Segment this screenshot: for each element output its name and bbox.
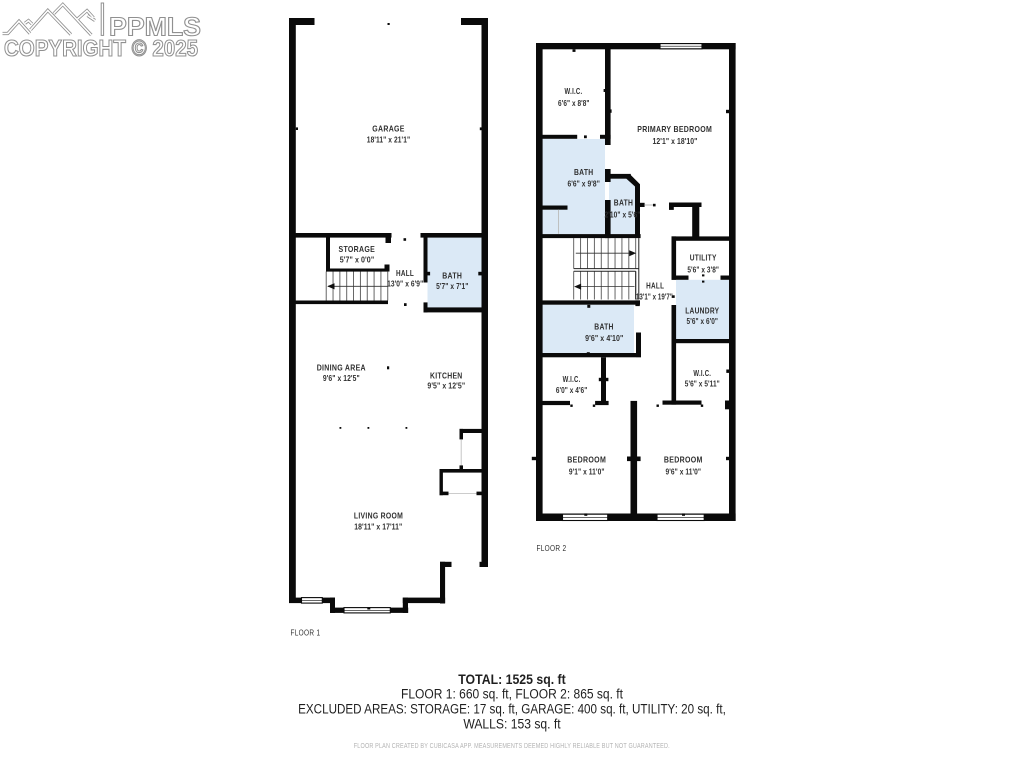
- svg-text:18'11" x 21'1": 18'11" x 21'1": [367, 134, 410, 144]
- svg-text:5'7" x 7'1": 5'7" x 7'1": [436, 281, 468, 291]
- svg-text:COPYRIGHT © 2025: COPYRIGHT © 2025: [4, 35, 198, 61]
- svg-text:TOTAL: 1525 sq. ft: TOTAL: 1525 sq. ft: [458, 672, 566, 687]
- svg-text:BEDROOM: BEDROOM: [664, 456, 703, 465]
- svg-text:W.I.C.: W.I.C.: [563, 375, 581, 384]
- svg-text:DINING AREA: DINING AREA: [317, 364, 366, 373]
- svg-text:5'6" x 3'8": 5'6" x 3'8": [687, 264, 719, 274]
- svg-text:GARAGE: GARAGE: [372, 125, 405, 134]
- svg-text:5'7" x 0'0": 5'7" x 0'0": [340, 254, 375, 264]
- svg-text:BATH: BATH: [594, 323, 614, 332]
- svg-text:13'1" x 19'7": 13'1" x 19'7": [636, 291, 673, 301]
- svg-text:BATH: BATH: [574, 168, 594, 177]
- svg-text:LIVING ROOM: LIVING ROOM: [354, 512, 403, 521]
- svg-text:W.I.C.: W.I.C.: [565, 87, 583, 96]
- svg-text:6'6" x 9'8": 6'6" x 9'8": [567, 179, 600, 189]
- svg-text:EXCLUDED AREAS: STORAGE: 17 sq: EXCLUDED AREAS: STORAGE: 17 sq. ft, GARA…: [298, 702, 726, 717]
- svg-text:9'1" x 11'0": 9'1" x 11'0": [569, 466, 605, 476]
- svg-text:PRIMARY BEDROOM: PRIMARY BEDROOM: [637, 125, 712, 134]
- svg-text:13'0" x 6'9": 13'0" x 6'9": [387, 279, 423, 289]
- svg-text:9'6" x 12'5": 9'6" x 12'5": [323, 373, 360, 383]
- svg-text:5'6" x 5'11": 5'6" x 5'11": [685, 379, 720, 389]
- svg-text:FLOOR 1: FLOOR 1: [291, 628, 321, 638]
- svg-text:6'6" x 8'8": 6'6" x 8'8": [558, 98, 590, 108]
- svg-text:LAUNDRY: LAUNDRY: [685, 306, 719, 315]
- svg-text:HALL: HALL: [396, 269, 414, 278]
- svg-text:UTILITY: UTILITY: [690, 253, 717, 262]
- svg-text:FLOOR 1: 660 sq. ft, FLOOR 2:: FLOOR 1: 660 sq. ft, FLOOR 2: 865 sq. ft: [401, 687, 623, 702]
- svg-text:12'1" x 18'10": 12'1" x 18'10": [653, 136, 698, 146]
- svg-text:STORAGE: STORAGE: [339, 245, 376, 254]
- svg-text:BEDROOM: BEDROOM: [567, 456, 606, 465]
- svg-text:9'6" x 4'10": 9'6" x 4'10": [585, 333, 623, 343]
- svg-text:18'11" x 17'11": 18'11" x 17'11": [354, 522, 402, 532]
- svg-text:FLOOR 2: FLOOR 2: [537, 543, 567, 553]
- svg-text:5'6" x 6'0": 5'6" x 6'0": [687, 316, 719, 326]
- svg-text:HALL: HALL: [646, 281, 664, 290]
- svg-text:KITCHEN: KITCHEN: [430, 371, 463, 380]
- svg-text:BATH: BATH: [614, 199, 634, 208]
- svg-text:9'5" x 12'5": 9'5" x 12'5": [427, 380, 465, 390]
- svg-text:FLOOR PLAN CREATED BY CUBICASA: FLOOR PLAN CREATED BY CUBICASA APP. MEAS…: [354, 743, 670, 750]
- svg-text:W.I.C.: W.I.C.: [693, 369, 711, 378]
- svg-text:6'0" x 4'6": 6'0" x 4'6": [556, 385, 588, 395]
- svg-text:2'10" x 5'6": 2'10" x 5'6": [605, 210, 641, 220]
- svg-text:BATH: BATH: [442, 271, 462, 280]
- svg-text:WALLS: 153 sq. ft: WALLS: 153 sq. ft: [463, 716, 561, 731]
- svg-text:9'6" x 11'0": 9'6" x 11'0": [665, 466, 701, 476]
